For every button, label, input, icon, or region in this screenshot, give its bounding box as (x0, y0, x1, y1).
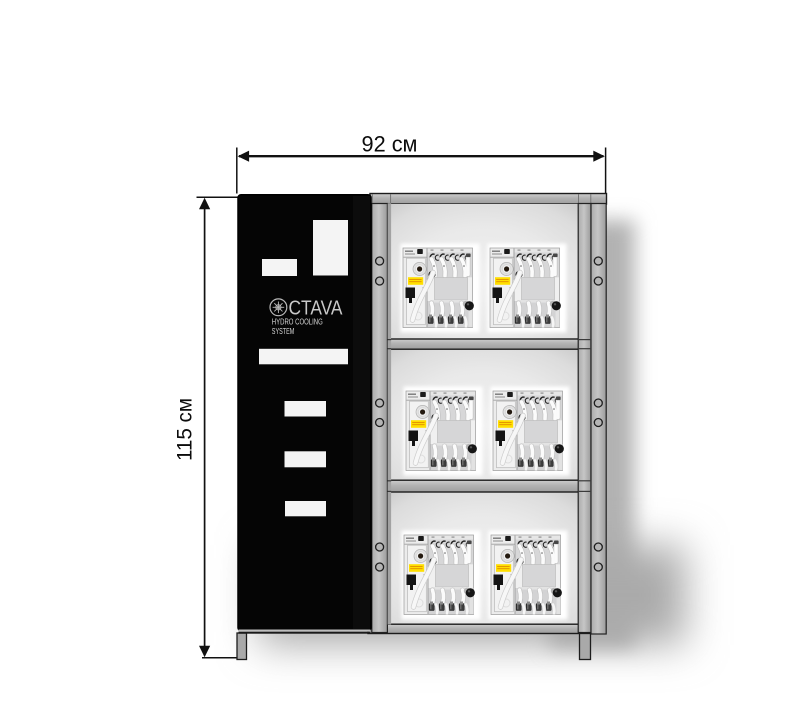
svg-text:SYSTEM: SYSTEM (272, 326, 295, 336)
svg-text:92 см: 92 см (362, 132, 418, 157)
svg-text:115 см: 115 см (173, 398, 197, 461)
